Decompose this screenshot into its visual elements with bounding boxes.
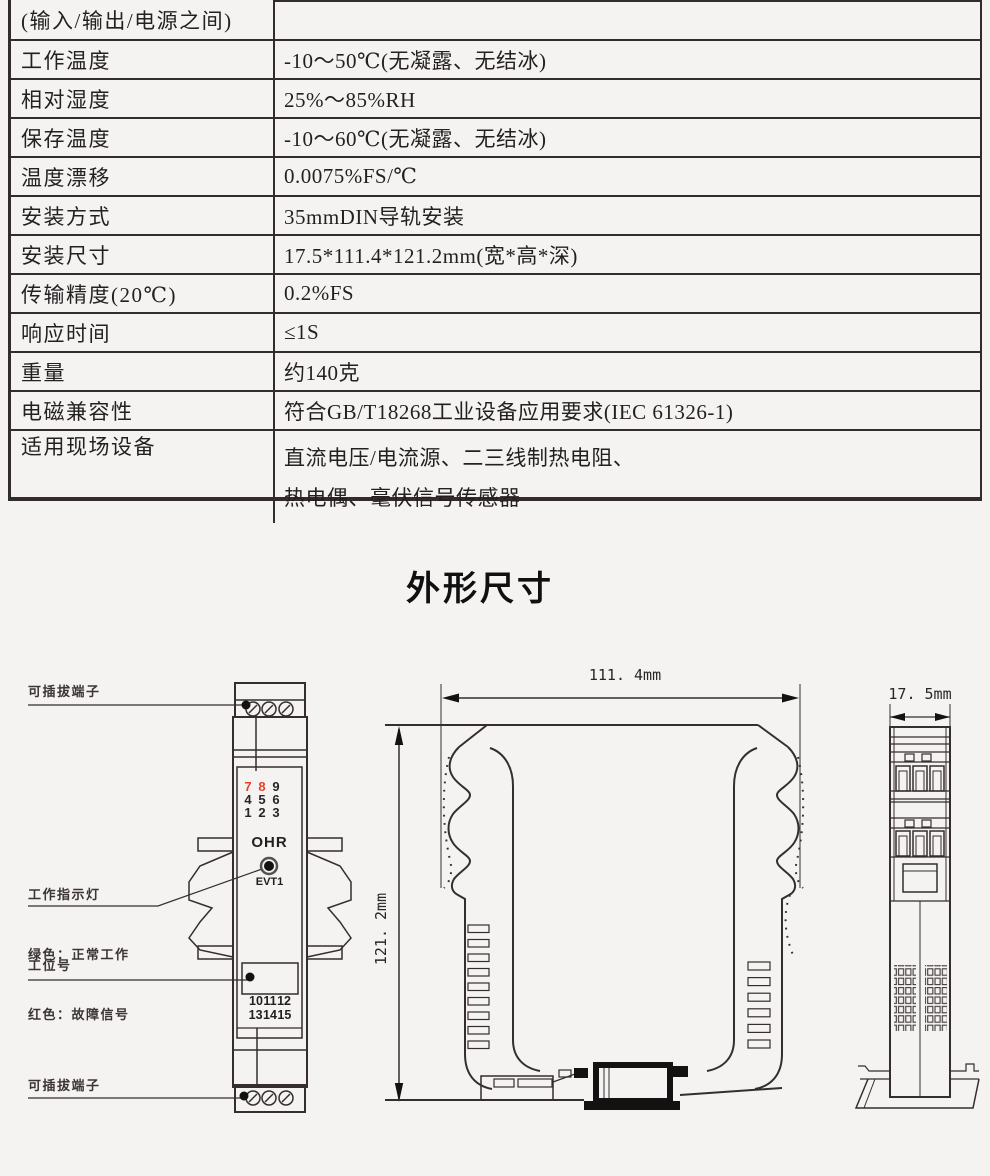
terminal-marker-dot	[242, 701, 251, 710]
terminal-numbers-top: 789 456 123	[241, 780, 285, 819]
terminal-number: 2	[255, 806, 269, 819]
spec-label: 适用现场设备	[11, 431, 273, 461]
spec-value-line1: 直流电压/电流源、二三线制热电阻、	[284, 438, 980, 478]
spec-label: 安装尺寸	[11, 240, 273, 270]
label-pluggable-terminal-top: 可插拔端子	[28, 682, 101, 702]
table-row: (输入/输出/电源之间)	[11, 0, 980, 39]
table-row: 工作温度 -10～50℃(无凝露、无结冰)	[11, 39, 980, 78]
vent-grid	[925, 965, 947, 1031]
terminal-number-row: 13 14 15	[237, 1009, 303, 1023]
spec-value: 17.5*111.4*121.2mm(宽*高*深)	[273, 236, 980, 273]
table-row: 传输精度(20℃) 0.2%FS	[11, 273, 980, 312]
terminal-number: 1	[241, 806, 255, 819]
spec-value: 25%～85%RH	[273, 80, 980, 117]
spec-label: 响应时间	[11, 318, 273, 348]
spec-label: 温度漂移	[11, 162, 273, 192]
spec-label: 保存温度	[11, 123, 273, 153]
indicator-line1: 工作指示灯	[28, 885, 130, 905]
table-row: 保存温度 -10～60℃(无凝露、无结冰)	[11, 117, 980, 156]
side-view-drawing	[385, 684, 803, 1110]
spec-value: 直流电压/电流源、二三线制热电阻、 热电偶、毫伏信号传感器	[273, 431, 980, 523]
terminal-number: 3	[269, 806, 283, 819]
spec-value: 0.2%FS	[273, 275, 980, 312]
datasheet-page: (输入/输出/电源之间) 工作温度 -10～50℃(无凝露、无结冰) 相对湿度 …	[0, 0, 990, 1176]
spec-label: 传输精度(20℃)	[11, 279, 273, 309]
table-row: 重量 约140克	[11, 351, 980, 390]
spec-label: (输入/输出/电源之间)	[11, 5, 273, 35]
section-title: 外形尺寸	[0, 561, 960, 610]
spec-label: 电磁兼容性	[11, 396, 273, 426]
width-view-drawing	[856, 704, 979, 1108]
spec-value: 0.0075%FS/℃	[273, 158, 980, 195]
table-row: 安装方式 35mmDIN导轨安装	[11, 195, 980, 234]
spec-table: (输入/输出/电源之间) 工作温度 -10～50℃(无凝露、无结冰) 相对湿度 …	[8, 0, 982, 501]
table-row: 安装尺寸 17.5*111.4*121.2mm(宽*高*深)	[11, 234, 980, 273]
dimension-depth: 17. 5mm	[880, 685, 960, 703]
table-row: 响应时间 ≤1S	[11, 312, 980, 351]
spec-label: 相对湿度	[11, 84, 273, 114]
spec-label: 工作温度	[11, 45, 273, 75]
model-label: EVT1	[237, 876, 302, 888]
spec-value: 约140克	[273, 353, 980, 390]
vent-grid	[894, 965, 916, 1031]
label-indicator: 工作指示灯 绿色：正常工作 红色：故障信号	[28, 845, 130, 1065]
table-row: 相对湿度 25%～85%RH	[11, 78, 980, 117]
spec-value	[273, 0, 980, 39]
table-row: 适用现场设备 直流电压/电流源、二三线制热电阻、 热电偶、毫伏信号传感器	[11, 429, 980, 523]
spec-label: 重量	[11, 357, 273, 387]
label-pluggable-terminal-bottom: 可插拔端子	[28, 1076, 101, 1096]
dimension-drawing	[0, 650, 990, 1176]
spec-value: 符合GB/T18268工业设备应用要求(IEC 61326-1)	[273, 392, 980, 429]
table-row: 温度漂移 0.0075%FS/℃	[11, 156, 980, 195]
spec-value: ≤1S	[273, 314, 980, 351]
brand-logo: OHR	[237, 834, 302, 851]
terminal-openings	[896, 766, 944, 856]
label-station-number: 工位号	[28, 956, 72, 976]
dimension-width: 111. 4mm	[560, 666, 690, 684]
spec-value: 35mmDIN导轨安装	[273, 197, 980, 234]
spec-label: 安装方式	[11, 201, 273, 231]
spec-value: -10～60℃(无凝露、无结冰)	[273, 119, 980, 156]
indicator-line3: 红色：故障信号	[28, 1005, 130, 1025]
spec-value: -10～50℃(无凝露、无结冰)	[273, 41, 980, 78]
terminal-numbers-bottom: 10 11 12 13 14 15	[237, 995, 303, 1022]
table-row: 电磁兼容性 符合GB/T18268工业设备应用要求(IEC 61326-1)	[11, 390, 980, 429]
spec-value-line2: 热电偶、毫伏信号传感器	[284, 478, 980, 518]
din-clip	[574, 1065, 688, 1110]
terminal-number-row: 10 11 12	[237, 995, 303, 1009]
dimension-height: 121. 2mm	[372, 881, 390, 977]
